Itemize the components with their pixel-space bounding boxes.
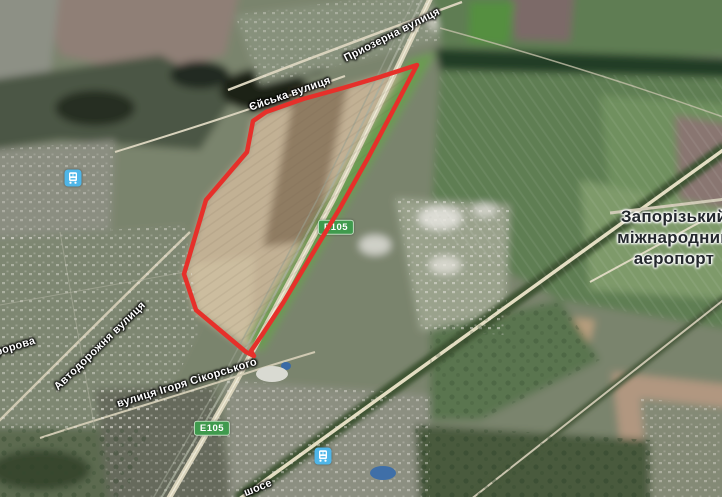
- street-label-yeiska: Єйська вулиця: [248, 74, 333, 113]
- route-badge-e105-north: E105: [318, 220, 354, 235]
- satellite-map-canvas[interactable]: Приозерна вулиця Єйська вулиця Автодорож…: [0, 0, 722, 497]
- airport-place-label: Запорізький міжнародний аеропорт: [612, 206, 722, 269]
- street-label-sikorskoho: вулиця Ігоря Сікорського: [116, 356, 259, 410]
- street-label-forova-partial: форова: [0, 335, 37, 359]
- train-station-icon[interactable]: [65, 170, 82, 187]
- street-label-pryozerna: Приозерна вулиця: [342, 6, 442, 65]
- train-glyph: [315, 448, 332, 465]
- airport-label-line1: Запорізький: [612, 206, 722, 227]
- airport-label-line2: міжнародний: [612, 227, 722, 248]
- train-glyph: [65, 170, 82, 187]
- route-badge-e105-south: E105: [194, 421, 230, 436]
- train-station-icon[interactable]: [315, 448, 332, 465]
- street-label-avtodorozhnia: Автодорожня вулиця: [52, 299, 148, 392]
- airport-label-line3: аеропорт: [612, 248, 722, 269]
- street-label-shose-partial: шосе: [242, 477, 274, 497]
